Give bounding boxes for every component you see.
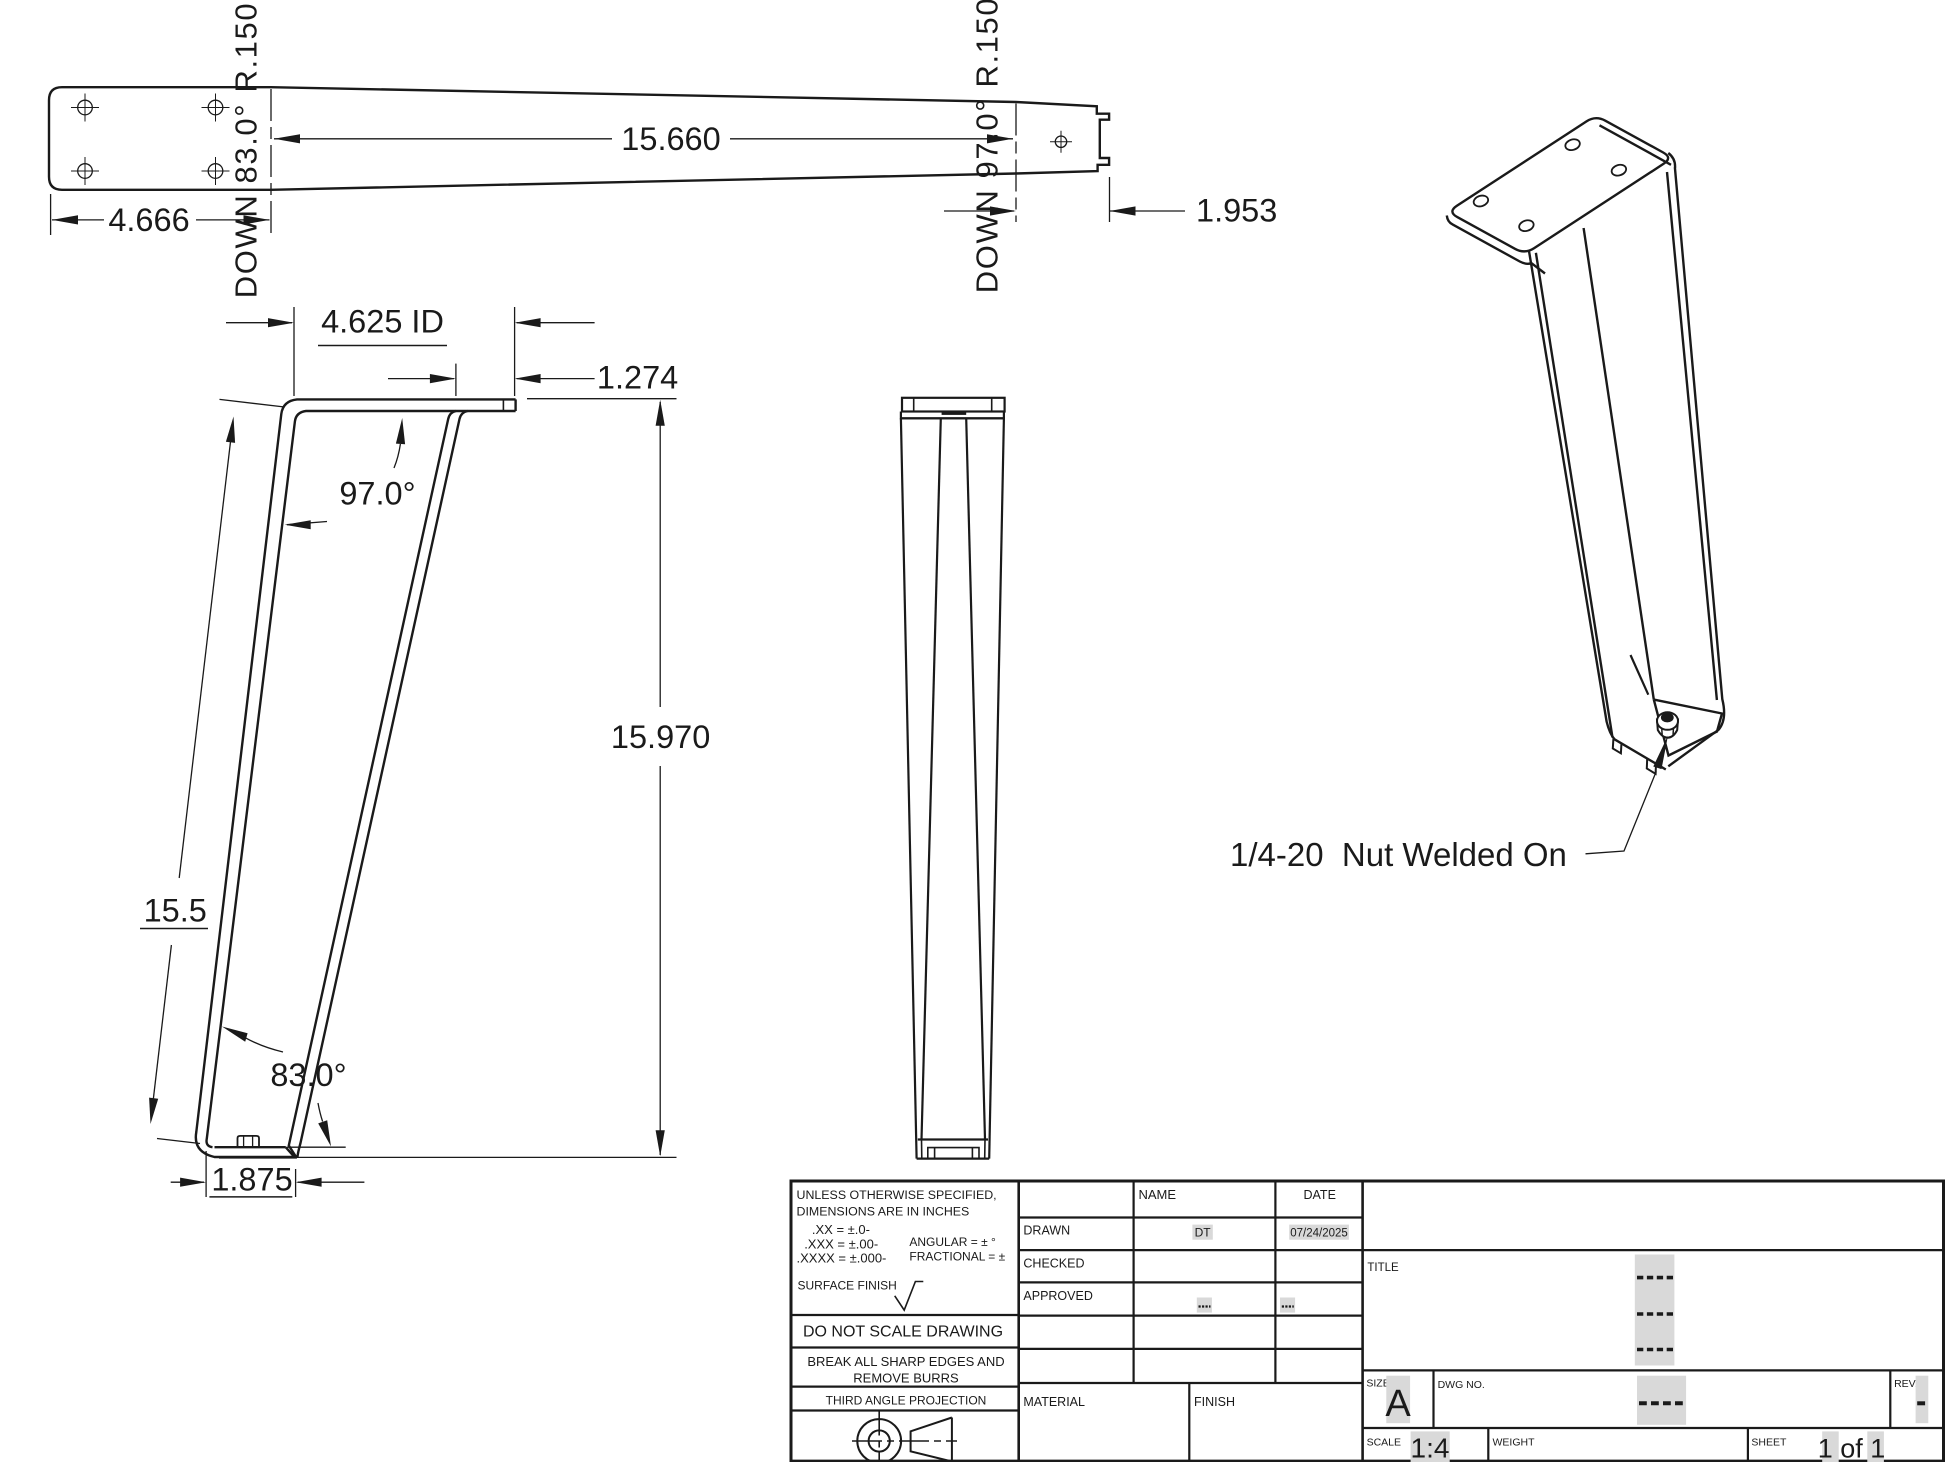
svg-text:DOWN 97.0° R.150: DOWN 97.0° R.150 [970, 0, 1005, 293]
svg-text:DOWN 83.0° R.150: DOWN 83.0° R.150 [229, 2, 264, 298]
svg-text:.XXXX = ±.000-: .XXXX = ±.000- [797, 1251, 887, 1266]
svg-text:DRAWN: DRAWN [1023, 1224, 1070, 1238]
svg-text:REV.: REV. [1894, 1378, 1918, 1390]
svg-text:BREAK ALL SHARP EDGES AND: BREAK ALL SHARP EDGES AND [807, 1354, 1004, 1369]
svg-text:A: A [1385, 1383, 1411, 1425]
svg-text:1.953: 1.953 [1196, 193, 1277, 229]
svg-text:97.0°: 97.0° [339, 476, 415, 512]
svg-text:DATE: DATE [1304, 1188, 1336, 1202]
svg-text:SURFACE FINISH: SURFACE FINISH [798, 1279, 897, 1293]
svg-text:15.5: 15.5 [144, 893, 207, 929]
svg-text:ANGULAR = ± °: ANGULAR = ± ° [909, 1235, 996, 1249]
svg-text:15.660: 15.660 [621, 121, 720, 157]
svg-text:DO NOT SCALE DRAWING: DO NOT SCALE DRAWING [803, 1324, 1003, 1341]
svg-text:1:4: 1:4 [1411, 1433, 1450, 1462]
svg-text:1/4-20 Nut Welded On: 1/4-20 Nut Welded On [1230, 836, 1567, 873]
svg-text:NAME: NAME [1139, 1187, 1177, 1202]
svg-text:SCALE: SCALE [1367, 1437, 1401, 1449]
svg-text:07/24/2025: 07/24/2025 [1290, 1228, 1348, 1240]
svg-text:.XXX = ±.00-: .XXX = ±.00- [804, 1236, 878, 1251]
svg-text:WEIGHT: WEIGHT [1493, 1437, 1536, 1449]
svg-text:TITLE: TITLE [1367, 1262, 1399, 1274]
svg-text:UNLESS OTHERWISE SPECIFIED,: UNLESS OTHERWISE SPECIFIED, [797, 1188, 997, 1202]
svg-text:1.274: 1.274 [597, 360, 678, 396]
svg-text:APPROVED: APPROVED [1023, 1289, 1092, 1303]
svg-text:FINISH: FINISH [1194, 1395, 1235, 1409]
svg-text:DT: DT [1195, 1226, 1212, 1240]
svg-text:DIMENSIONS ARE IN INCHES: DIMENSIONS ARE IN INCHES [797, 1205, 970, 1219]
svg-text:83.0°: 83.0° [270, 1057, 346, 1093]
svg-text:.XX = ±.0-: .XX = ±.0- [812, 1222, 870, 1237]
svg-text:MATERIAL: MATERIAL [1023, 1395, 1085, 1409]
svg-text:DWG NO.: DWG NO. [1438, 1379, 1485, 1391]
svg-text:1 of 1: 1 of 1 [1818, 1434, 1886, 1462]
svg-text:1.875: 1.875 [211, 1162, 292, 1198]
svg-text:REMOVE BURRS: REMOVE BURRS [853, 1371, 959, 1386]
svg-text:15.970: 15.970 [611, 719, 710, 755]
svg-text:4.625 ID: 4.625 ID [321, 304, 444, 340]
svg-text:SHEET: SHEET [1751, 1437, 1787, 1449]
svg-text:THIRD ANGLE PROJECTION: THIRD ANGLE PROJECTION [826, 1394, 987, 1408]
svg-text:4.666: 4.666 [108, 202, 189, 238]
svg-text:CHECKED: CHECKED [1023, 1257, 1084, 1271]
svg-text:FRACTIONAL = ±: FRACTIONAL = ± [909, 1249, 1005, 1263]
